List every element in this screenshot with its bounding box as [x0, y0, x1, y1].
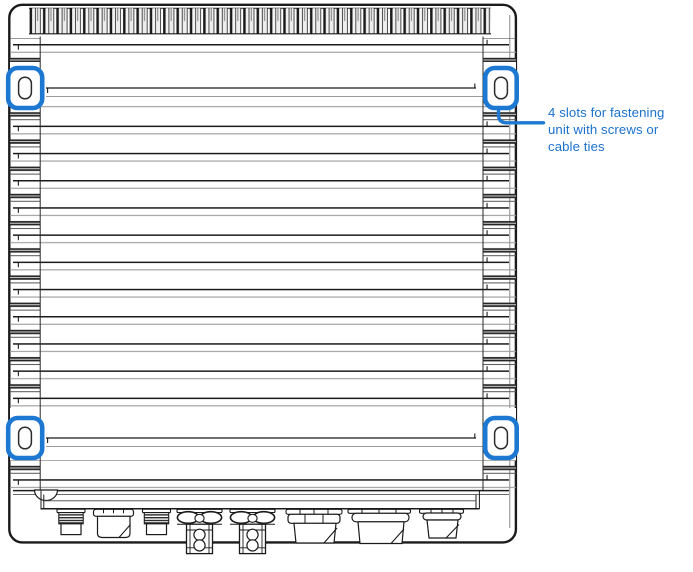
connector-m12-2 — [143, 509, 171, 534]
device-top-view-drawing — [0, 0, 693, 572]
slot-opening — [495, 77, 508, 99]
slot-opening — [495, 427, 508, 449]
fastening-slot-top-left — [8, 68, 42, 108]
fastening-slot-bottom-right — [485, 418, 517, 458]
fastening-slot-top-right — [485, 68, 517, 108]
slot-opening — [19, 77, 32, 99]
figure-canvas: 4 slots for fastening unit with screws o… — [0, 0, 693, 572]
slots-annotation: 4 slots for fastening unit with screws o… — [548, 104, 664, 155]
bottom-connectors — [57, 509, 464, 553]
top-fin-row — [29, 8, 491, 34]
side-fin-pattern — [10, 37, 516, 491]
annotation-line-1: 4 slots for fastening — [548, 104, 664, 121]
annotation-line-2: unit with screws or — [548, 121, 664, 138]
connector-m12-1 — [57, 509, 85, 534]
connector-cup-1 — [94, 509, 134, 537]
fastening-slot-bottom-left — [8, 418, 42, 458]
slot-opening — [19, 427, 32, 449]
annotation-line-3: cable ties — [548, 138, 664, 155]
